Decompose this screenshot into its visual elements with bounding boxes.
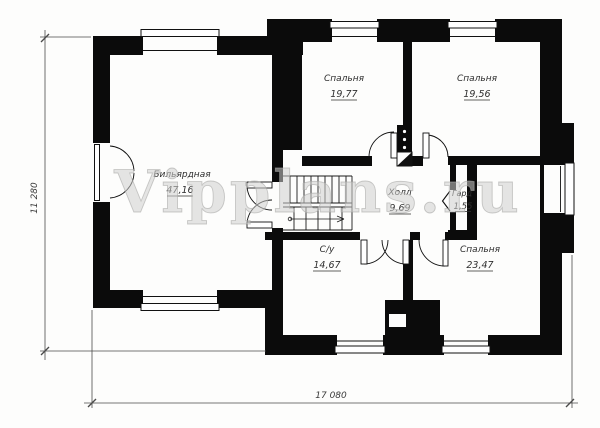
floor-plan-svg: Бильярдная 47,16 Спальня 19,77 Спальня 1… <box>0 0 600 428</box>
room-area: 19,56 <box>463 89 490 100</box>
french-door-sill <box>95 145 100 201</box>
window-frame-top-b <box>448 22 497 29</box>
dimension-height-label: 11 280 <box>30 182 40 214</box>
room-name: Спальня <box>457 74 498 84</box>
bedroom3-door-leaf <box>443 240 448 266</box>
room-area: 14,67 <box>313 260 340 271</box>
room-name: С/у <box>320 245 335 255</box>
room-area: 23,47 <box>466 260 493 271</box>
wall-hall-bottom-c <box>445 232 477 240</box>
wall-bottom <box>265 335 562 355</box>
window-frame-bay <box>565 163 574 215</box>
watermark: Vipplans.ru <box>113 158 521 226</box>
wall-left-upper <box>93 36 110 143</box>
shaft-dot <box>403 138 406 141</box>
chimney-notch <box>389 314 406 327</box>
shaft-dot <box>403 146 406 149</box>
wall-lower-left <box>265 292 283 335</box>
wall-bedroom-divider <box>403 42 412 125</box>
window-frame-bedroom3 <box>442 346 490 353</box>
room-area: 19,77 <box>330 89 357 100</box>
wall-top-right <box>267 19 562 42</box>
floor-plan-page: Бильярдная 47,16 Спальня 19,77 Спальня 1… <box>0 0 600 428</box>
wall-divider-thick <box>272 42 302 150</box>
bedroom1-door-leaf <box>391 133 397 158</box>
opening-window-topleft <box>143 36 217 55</box>
window-frame-bottomleft <box>141 304 219 311</box>
room-name: Спальня <box>460 245 501 255</box>
bath-door-leaf-right <box>403 240 409 264</box>
window-frame-topleft <box>141 30 219 37</box>
window-frame-bath <box>335 346 385 353</box>
bedroom2-door-leaf <box>423 133 429 158</box>
room-name: Спальня <box>324 74 365 84</box>
wall-hall-bottom-b <box>410 232 420 240</box>
dimension-width-label: 17 080 <box>315 391 347 401</box>
wall-hall-bottom-a <box>265 232 360 240</box>
bath-door-leaf-left <box>361 240 367 264</box>
shaft-dot <box>403 130 406 133</box>
window-frame-top-a <box>330 22 379 29</box>
